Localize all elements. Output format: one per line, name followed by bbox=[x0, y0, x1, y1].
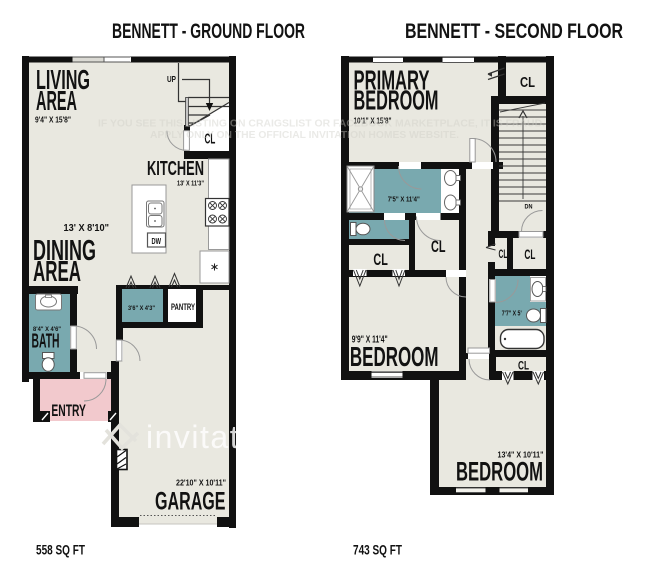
svg-text:BATH: BATH bbox=[32, 329, 60, 352]
svg-text:CL: CL bbox=[431, 237, 446, 256]
svg-text:CL: CL bbox=[518, 359, 529, 373]
svg-text:BEDROOM: BEDROOM bbox=[350, 341, 439, 372]
svg-text:invitation: invitation bbox=[146, 419, 287, 455]
svg-text:BENNETT - GROUND FLOOR: BENNETT - GROUND FLOOR bbox=[112, 20, 305, 43]
svg-text:743 SQ FT: 743 SQ FT bbox=[353, 542, 402, 558]
svg-text:7'7" X 5': 7'7" X 5' bbox=[502, 308, 522, 317]
svg-text:DN: DN bbox=[525, 204, 533, 211]
svg-text:BEDROOM: BEDROOM bbox=[456, 457, 543, 487]
svg-text:PANTRY: PANTRY bbox=[171, 302, 195, 312]
svg-text:APPLY ONLY ON THE OFFICIAL INV: APPLY ONLY ON THE OFFICIAL INVITATION HO… bbox=[150, 129, 459, 141]
svg-text:KITCHEN: KITCHEN bbox=[147, 158, 204, 180]
svg-text:UP: UP bbox=[167, 74, 176, 84]
svg-text:CL: CL bbox=[499, 247, 508, 261]
svg-text:3'6" X 4'3": 3'6" X 4'3" bbox=[128, 305, 155, 312]
svg-text:BENNETT - SECOND FLOOR: BENNETT - SECOND FLOOR bbox=[405, 20, 623, 43]
svg-text:CL: CL bbox=[524, 247, 535, 262]
svg-text:IF YOU SEE THIS LISTING ON CRA: IF YOU SEE THIS LISTING ON CRAIGSLIST OR… bbox=[98, 118, 545, 130]
svg-text:CL: CL bbox=[373, 250, 387, 269]
svg-text:9'4" X 15'8": 9'4" X 15'8" bbox=[35, 115, 71, 125]
svg-text:AREA: AREA bbox=[36, 85, 77, 116]
svg-text:7'5" X 11'4": 7'5" X 11'4" bbox=[388, 197, 420, 204]
svg-text:22'10" X 10'11": 22'10" X 10'11" bbox=[176, 478, 226, 487]
svg-text:GARAGE: GARAGE bbox=[155, 488, 226, 516]
svg-text:558 SQ FT: 558 SQ FT bbox=[36, 542, 85, 558]
svg-text:DW: DW bbox=[152, 237, 162, 246]
svg-text:13' X 8'10": 13' X 8'10" bbox=[64, 223, 110, 234]
svg-text:ENTRY: ENTRY bbox=[51, 401, 86, 420]
svg-text:CL: CL bbox=[520, 75, 535, 91]
svg-text:AREA: AREA bbox=[33, 256, 81, 288]
svg-text:BEDROOM: BEDROOM bbox=[354, 85, 439, 116]
svg-text:13' X 11'3": 13' X 11'3" bbox=[177, 179, 204, 188]
